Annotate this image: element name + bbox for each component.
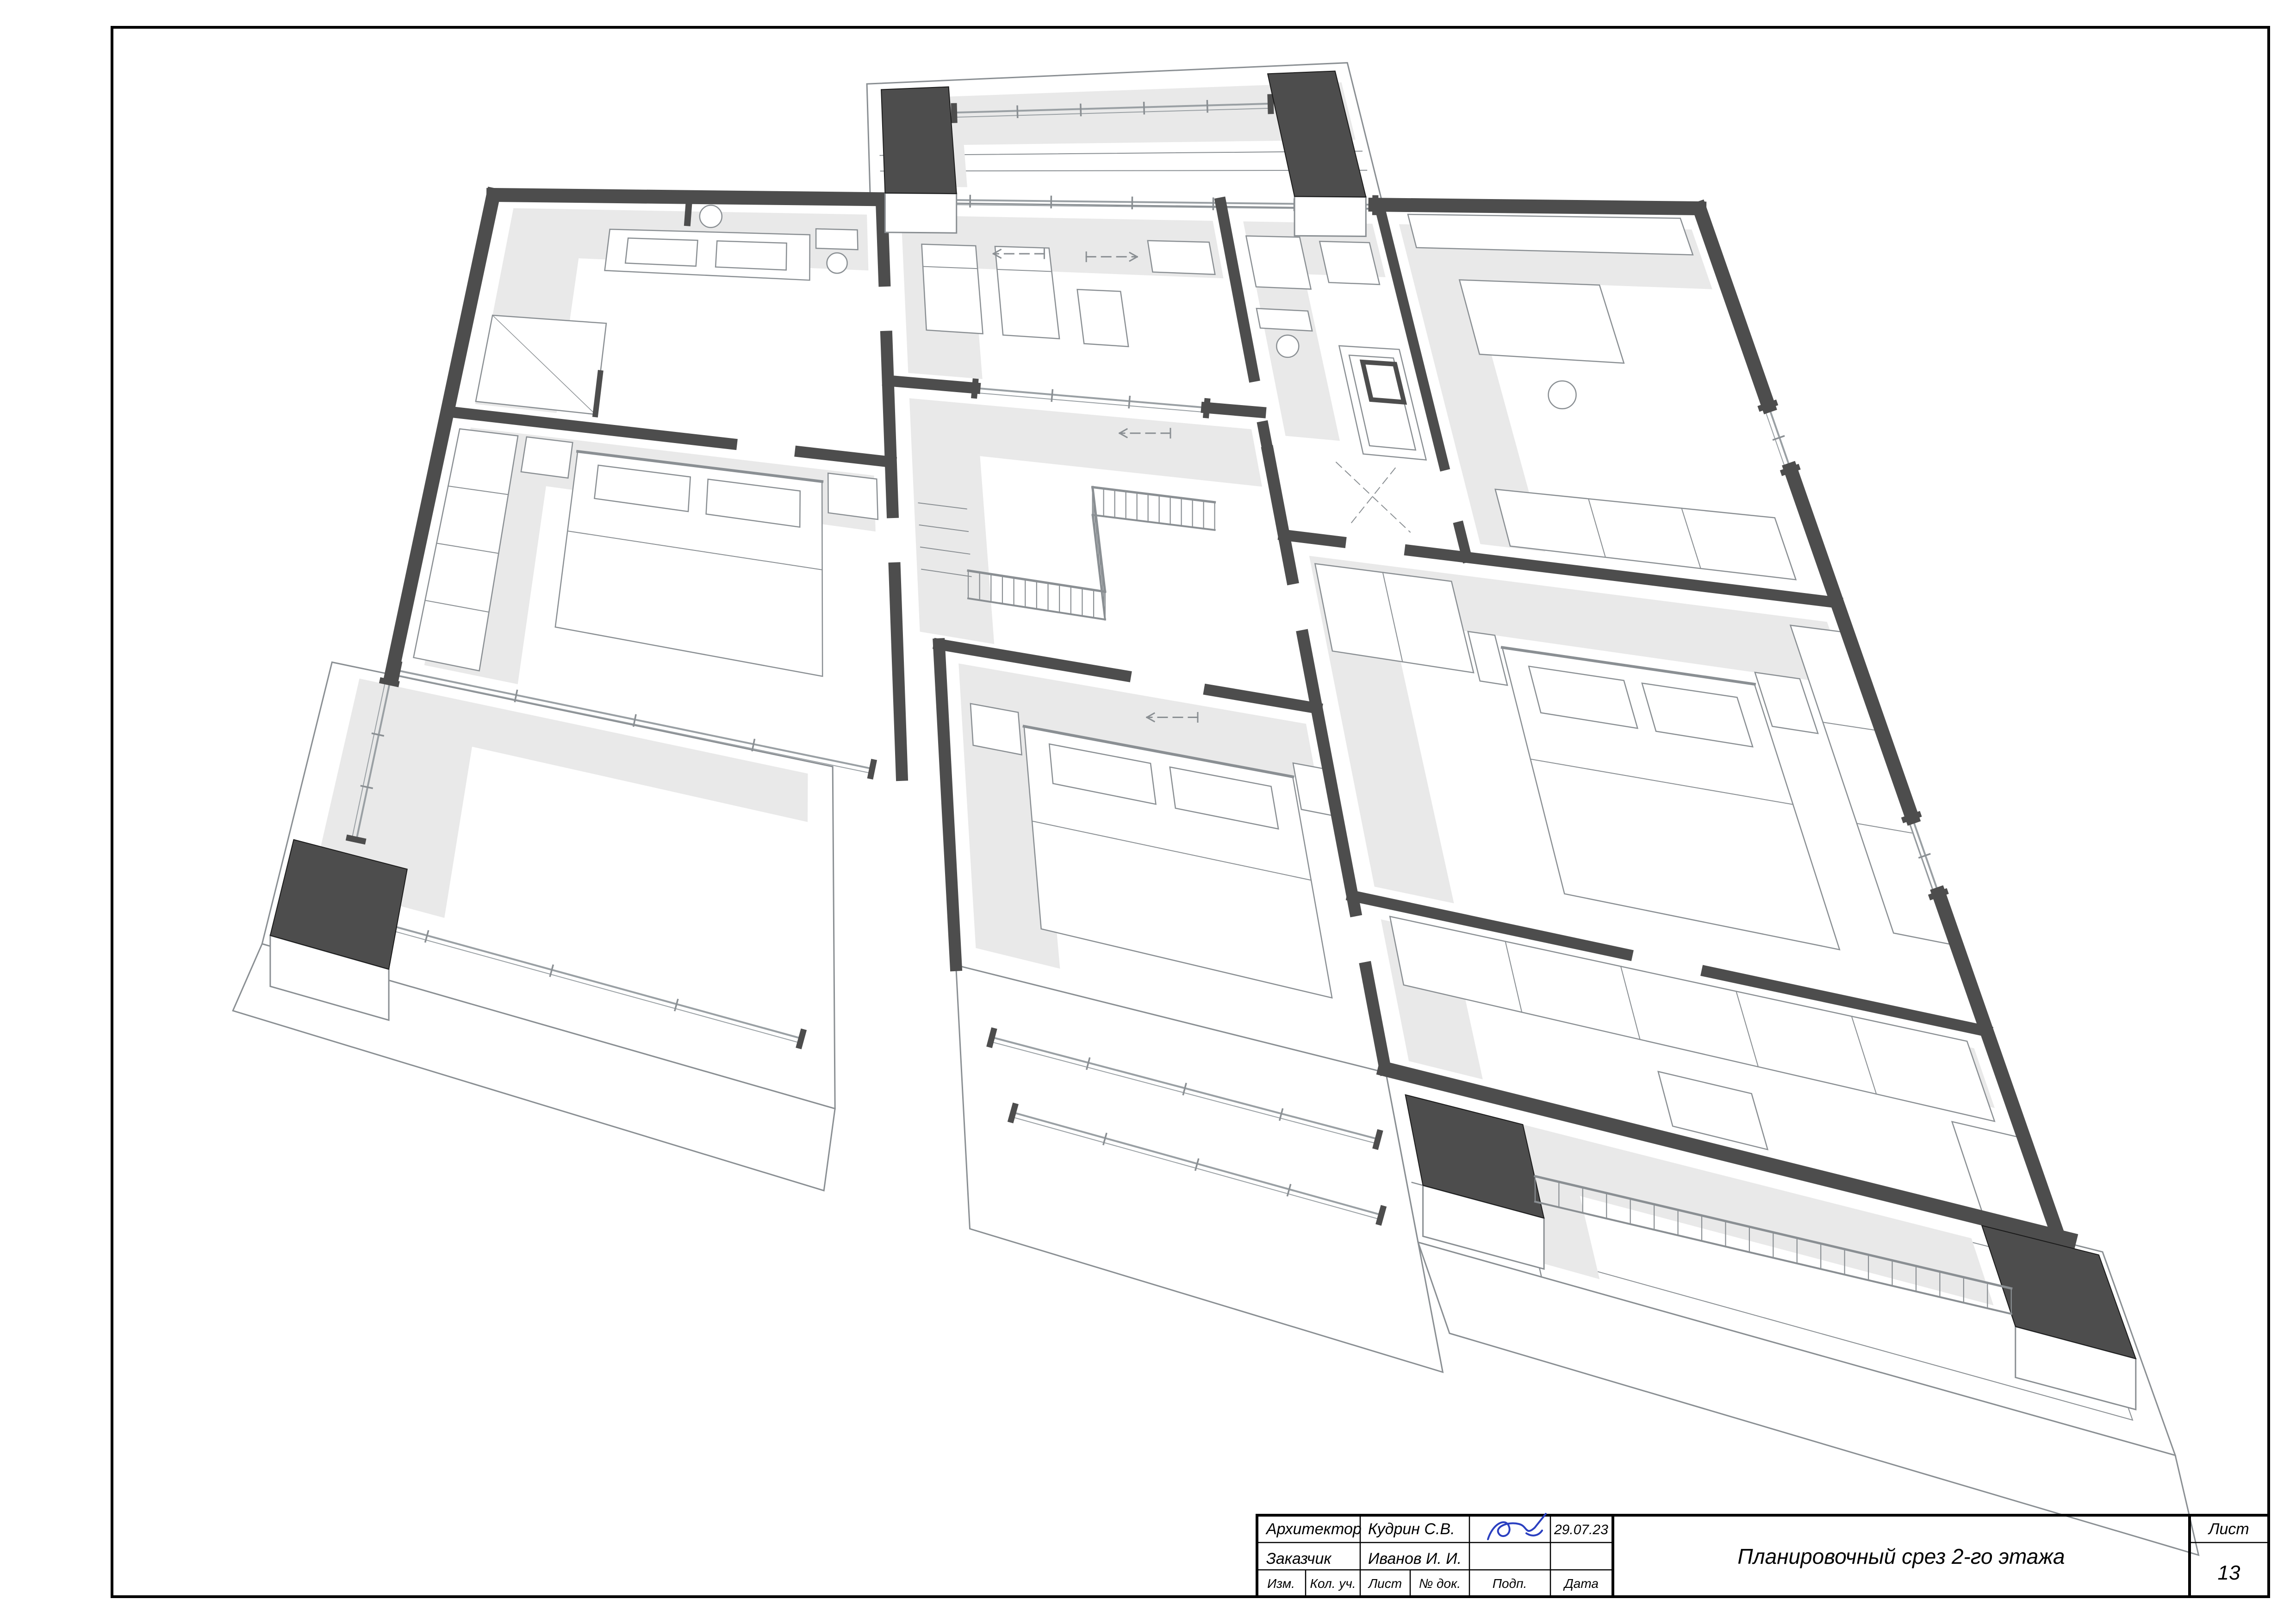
sink: [625, 238, 697, 266]
wall: [1366, 968, 1385, 1069]
architect-label: Архитектор: [1265, 1520, 1362, 1538]
floor-plan-drawing: [233, 63, 2198, 1555]
toilet: [1276, 335, 1299, 357]
sheet-number: 13: [2218, 1562, 2240, 1584]
wall-stub: [687, 197, 689, 223]
wall: [1699, 208, 1768, 406]
wall: [1209, 690, 1317, 708]
drawing-sheet: Архитектор Кудрин С.В. 29.07.23 Заказчик…: [0, 0, 2296, 1624]
balcony-glass: [1081, 104, 1081, 115]
desk: [1459, 280, 1624, 363]
nightstand: [521, 437, 572, 478]
glass-wall: [1376, 1133, 1380, 1146]
balcony-glass: [1017, 106, 1018, 117]
col-izm: Изм.: [1267, 1576, 1295, 1591]
wall: [886, 337, 892, 512]
client-name: Иванов И. И.: [1368, 1550, 1462, 1568]
balcony-glass: [954, 106, 954, 120]
glass-wall: [990, 1031, 994, 1044]
col-podp: Подп.: [1493, 1576, 1527, 1591]
glass-wall: [871, 762, 873, 776]
balcony-glass: [1207, 101, 1207, 112]
glass-wall: [349, 838, 363, 841]
balcony-glass: [1270, 97, 1271, 111]
drawing-title: Планировочный срез 2-го этажа: [1737, 1544, 2065, 1568]
wall: [1207, 408, 1260, 412]
wall: [895, 568, 902, 775]
shadow: [909, 398, 1262, 644]
date-value: 29.07.23: [1554, 1522, 1608, 1537]
treadmill: [995, 246, 1059, 338]
nightstand: [828, 473, 878, 519]
col-kol: Кол. уч.: [1310, 1576, 1356, 1591]
chair: [1549, 381, 1576, 409]
wall: [800, 452, 890, 462]
nightstand: [1468, 631, 1507, 685]
sliding-door: [975, 388, 1207, 408]
col-doc: № док.: [1419, 1576, 1461, 1591]
client-label: Заказчик: [1266, 1550, 1332, 1568]
architect-name: Кудрин С.В.: [1368, 1520, 1455, 1538]
sink: [1319, 241, 1380, 284]
balcony-glass: [1144, 103, 1145, 114]
wall: [888, 381, 975, 388]
sink: [716, 241, 787, 270]
door-swing: [1336, 462, 1410, 532]
cistern: [816, 229, 858, 250]
stair-railing: [1093, 487, 1215, 502]
pier: [881, 87, 957, 194]
pier-face: [885, 193, 956, 233]
glass-wall: [1379, 1209, 1383, 1222]
bench: [1148, 241, 1215, 275]
wall: [882, 199, 884, 281]
balcony-glass: [799, 1032, 803, 1046]
sheet-label: Лист: [2208, 1520, 2249, 1538]
pier-face: [1294, 196, 1366, 236]
wall: [1284, 535, 1340, 542]
stair-railing: [1093, 515, 1215, 530]
shower: [476, 315, 606, 414]
floor-plan-sheet: Архитектор Кудрин С.В. 29.07.23 Заказчик…: [0, 0, 2296, 1624]
sliding-door: [1052, 390, 1052, 401]
sliding-door: [1129, 397, 1130, 408]
shelf: [1408, 214, 1693, 255]
wall: [939, 644, 956, 965]
wall: [1375, 205, 1699, 208]
col-data: Дата: [1563, 1576, 1599, 1591]
wall: [1268, 452, 1292, 578]
cistern: [1257, 308, 1312, 331]
toilet: [827, 253, 847, 273]
washer: [1246, 236, 1311, 289]
glass-wall: [1011, 1106, 1015, 1120]
signature: [1488, 1514, 1546, 1539]
exercise-bike: [1077, 289, 1129, 346]
treadmill: [922, 244, 983, 334]
mirror: [700, 205, 722, 227]
col-list: Лист: [1368, 1576, 1402, 1591]
